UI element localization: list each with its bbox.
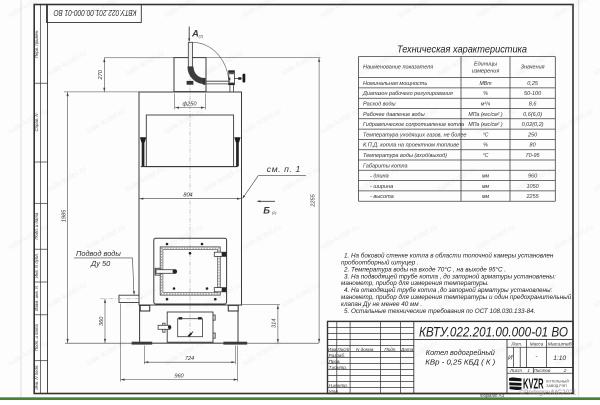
svg-text:314: 314	[272, 319, 278, 328]
svg-text:Пров.: Пров.	[329, 359, 341, 364]
svg-text:2255: 2255	[310, 193, 316, 207]
svg-text:КОТЕЛЬНЫЙ: КОТЕЛЬНЫЙ	[546, 380, 569, 384]
svg-text:ф250: ф250	[182, 102, 197, 108]
svg-text:1. На боковой стенке котла в: 1. На боковой стенке котла в области топ…	[344, 251, 554, 259]
svg-text:-: -	[535, 354, 537, 361]
svg-text:Подп. и дата: Подп. и дата	[34, 324, 39, 352]
svg-text:N докум.: N докум.	[356, 347, 375, 352]
svg-text:1050: 1050	[526, 184, 539, 190]
svg-text:°С: °С	[483, 132, 489, 138]
svg-text:Техническая характеристика: Техническая характеристика	[397, 45, 528, 56]
svg-text:КВр - 0,25 КБД ( К ): КВр - 0,25 КБД ( К )	[425, 358, 495, 367]
svg-text:1985: 1985	[61, 209, 67, 222]
svg-text:Взам. инв. N: Взам. инв. N	[34, 285, 39, 311]
svg-text:Гидравлическое сопротивление к: Гидравлическое сопротивление котла	[363, 122, 464, 128]
svg-text:©PodogrevMG2021: ©PodogrevMG2021	[520, 388, 577, 397]
svg-text:2: 2	[563, 368, 567, 373]
svg-text:724: 724	[185, 356, 194, 362]
svg-text:Единицы: Единицы	[474, 62, 497, 68]
svg-text:(2): (2)	[272, 211, 277, 215]
svg-text:Лист: Лист	[336, 347, 349, 352]
svg-text:мм: мм	[482, 184, 490, 190]
svg-text:Номинальная мощность: Номинальная мощность	[363, 81, 427, 87]
svg-text:%: %	[483, 143, 488, 149]
svg-text:Справ. N: Справ. N	[34, 113, 39, 132]
svg-text:Подп.: Подп.	[384, 347, 396, 352]
svg-text:3. На подводящей трубе котла: 3. На подводящей трубе котла , до запорн…	[344, 272, 556, 280]
svg-text:50-100: 50-100	[524, 91, 542, 97]
svg-text:Котел водогрейный: Котел водогрейный	[426, 348, 496, 357]
svg-text:Дата: Дата	[400, 347, 414, 352]
svg-text:- длина: - длина	[370, 174, 389, 180]
svg-text:Инв. N подл.: Инв. N подл.	[34, 365, 39, 390]
svg-text:мм: мм	[482, 174, 490, 180]
svg-text:Рабочее давление воды: Рабочее давление воды	[363, 112, 425, 118]
svg-text:270: 270	[98, 69, 104, 80]
svg-text:(2): (2)	[199, 35, 204, 39]
svg-text:МВт: МВт	[479, 81, 492, 87]
svg-text:0,25: 0,25	[527, 81, 539, 87]
svg-text:Наименование показателя: Наименование показателя	[363, 65, 433, 71]
svg-text:1: 1	[527, 368, 530, 373]
svg-text:Габариты котла: Габариты котла	[363, 163, 408, 169]
svg-text:360: 360	[99, 316, 105, 326]
svg-text:МПа (кгс/см² ): МПа (кгс/см² )	[468, 112, 502, 118]
svg-text:Температура воды (вход/выход): Температура воды (вход/выход)	[363, 153, 447, 159]
svg-text:Разраб.: Разраб.	[329, 353, 346, 358]
svg-text:Диапазон рабочего регулировани: Диапазон рабочего регулирования	[362, 91, 453, 97]
svg-text:Листов: Листов	[533, 368, 551, 373]
svg-text:°С: °С	[483, 153, 489, 159]
svg-text:пробоотборный штуцер .: пробоотборный штуцер .	[341, 258, 419, 266]
svg-text:Расход воды: Расход воды	[363, 102, 396, 108]
svg-text:804: 804	[183, 193, 192, 199]
svg-text:Т.контр.: Т.контр.	[329, 365, 348, 370]
svg-text:70-95: 70-95	[526, 153, 541, 159]
svg-text:Н.контр.: Н.контр.	[329, 383, 348, 388]
svg-text:Лит.: Лит.	[510, 342, 522, 347]
svg-text:960: 960	[174, 374, 184, 380]
svg-text:Б: Б	[263, 206, 270, 217]
svg-text:250: 250	[527, 132, 538, 138]
svg-text:960: 960	[528, 174, 538, 180]
svg-text:2. Температура воды на входе: 2. Температура воды на входе 70°С , на в…	[343, 265, 506, 273]
svg-text:Лист: Лист	[509, 368, 522, 373]
svg-text:Ду 50: Ду 50	[90, 259, 111, 268]
svg-text:И: И	[508, 355, 513, 362]
svg-text:клапан Ду не менее 40 мм .: клапан Ду не менее 40 мм .	[341, 301, 422, 308]
svg-text:0,6(6,0): 0,6(6,0)	[523, 112, 542, 118]
svg-text:измерения: измерения	[472, 69, 500, 75]
svg-text:КВТУ.022.201.00.000-01 ВО: КВТУ.022.201.00.000-01 ВО	[419, 324, 568, 339]
svg-text:Инв. N дубл.: Инв. N дубл.	[34, 253, 39, 278]
svg-text:%: %	[483, 91, 488, 97]
svg-text:4. На отводящей трубе котла ,: 4. На отводящей трубе котла ,до запорной…	[344, 286, 553, 294]
svg-text:2255: 2255	[525, 194, 539, 200]
svg-text:1:10: 1:10	[553, 355, 566, 362]
svg-text:- ширина: - ширина	[370, 184, 393, 190]
svg-text:Перв. примен.: Перв. примен.	[34, 30, 39, 59]
svg-text:0,02(0,2): 0,02(0,2)	[522, 122, 544, 128]
svg-text:КВТУ.022.201.00.000-01 ВО: КВТУ.022.201.00.000-01 ВО	[54, 8, 137, 17]
svg-text:- высота: - высота	[370, 194, 394, 200]
svg-text:манометр, прибор для измерения: манометр, прибор для измерения температу…	[341, 279, 489, 287]
svg-text:Подвод воды: Подвод воды	[76, 249, 121, 258]
svg-text:Масштаб: Масштаб	[548, 342, 572, 347]
svg-text:МПа (кгс/см² ): МПа (кгс/см² )	[468, 122, 502, 128]
svg-text:м³/ч: м³/ч	[481, 102, 491, 108]
svg-text:см. п. 1: см. п. 1	[267, 164, 301, 174]
svg-text:Изм: Изм	[328, 347, 337, 352]
svg-text:К.П.Д. котла на проектном топл: К.П.Д. котла на проектном топливе	[363, 143, 459, 149]
svg-text:манометр, прибор для измерения: манометр, прибор для измерения температу…	[341, 293, 572, 301]
svg-text:Формат А3: Формат А3	[480, 393, 505, 398]
svg-text:мм: мм	[482, 194, 490, 200]
svg-text:Подп. и дата: Подп. и дата	[34, 212, 39, 240]
svg-text:Масса: Масса	[530, 342, 544, 347]
svg-text:Утв.: Утв.	[329, 389, 339, 394]
svg-text:80: 80	[530, 143, 537, 149]
svg-text:Температура уходящих газов, не: Температура уходящих газов, не более	[363, 132, 466, 138]
svg-text:8,6: 8,6	[529, 102, 538, 108]
svg-text:5. Остальные технические треб: 5. Остальные технические требования по О…	[344, 307, 535, 315]
svg-text:Значения: Значения	[521, 65, 545, 71]
